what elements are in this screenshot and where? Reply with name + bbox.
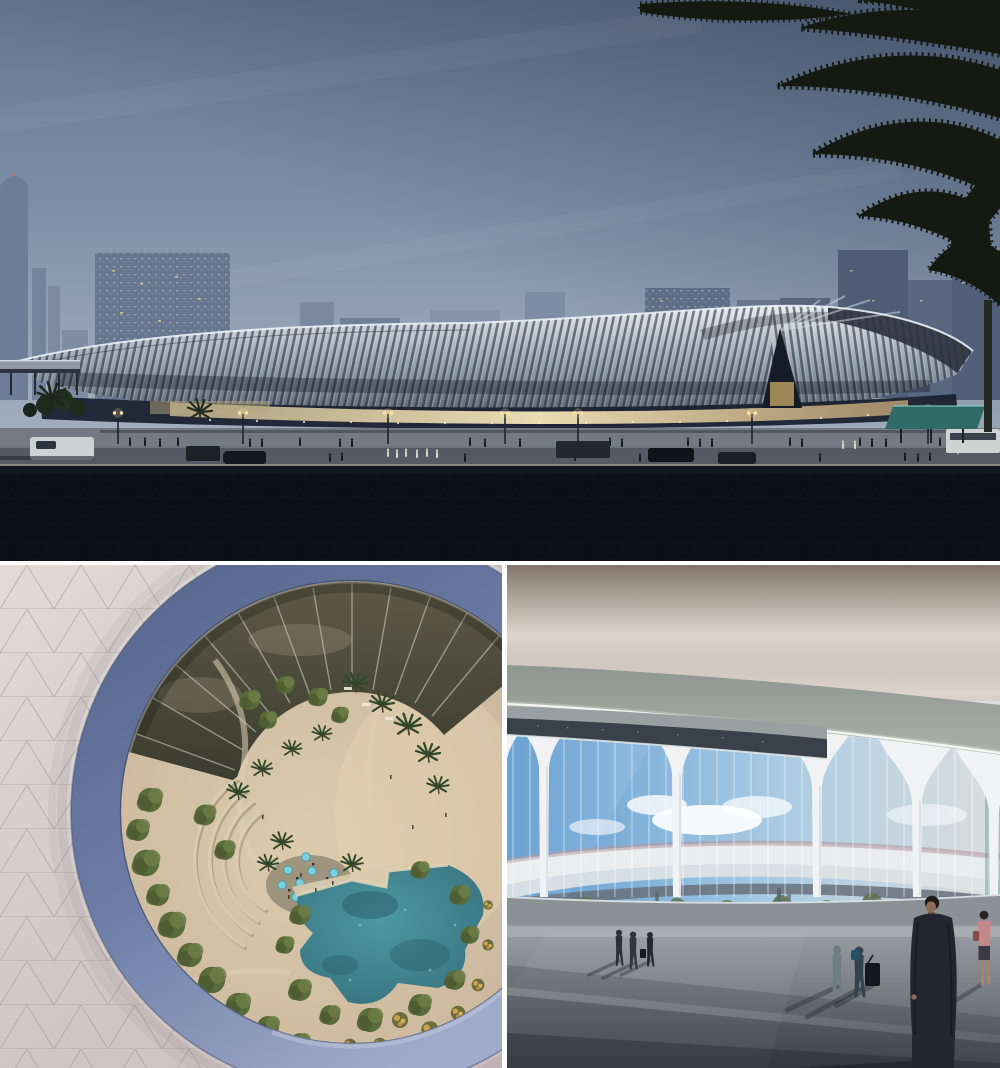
dark-suv: [186, 446, 220, 461]
panel-interior-concourse: Interior concourse with a fanned timber …: [507, 565, 1000, 1068]
pink-top: [978, 921, 991, 946]
sedan: [718, 452, 756, 464]
street-plaza: [0, 428, 1000, 468]
sedan: [224, 451, 266, 464]
dark-suv: [556, 441, 610, 458]
sedan: [648, 448, 694, 462]
panel-exterior-dusk: Dusk exterior rendering of a long termin…: [0, 0, 1000, 561]
dark-foreground: [0, 466, 1000, 561]
handbag: [973, 931, 979, 941]
rendering-collage: Dusk exterior rendering of a long termin…: [0, 0, 1000, 1068]
palm-trunk: [984, 300, 992, 432]
face: [926, 901, 936, 912]
beacon-light: [13, 174, 16, 177]
panel-oculus-garden: Aerial view over a pale triangulated roo…: [0, 565, 502, 1068]
skirt: [979, 946, 991, 960]
hair: [980, 911, 989, 920]
rolling-bag: [640, 949, 646, 958]
suitcase: [865, 963, 880, 986]
white-bus: [946, 429, 1000, 453]
backpack: [851, 950, 860, 960]
hand: [911, 994, 916, 999]
concourse-scene: [507, 565, 1000, 1068]
oculus-scene: [0, 565, 502, 1068]
foreground-man-suit: [910, 896, 956, 1068]
exterior-scene: [0, 0, 1000, 561]
